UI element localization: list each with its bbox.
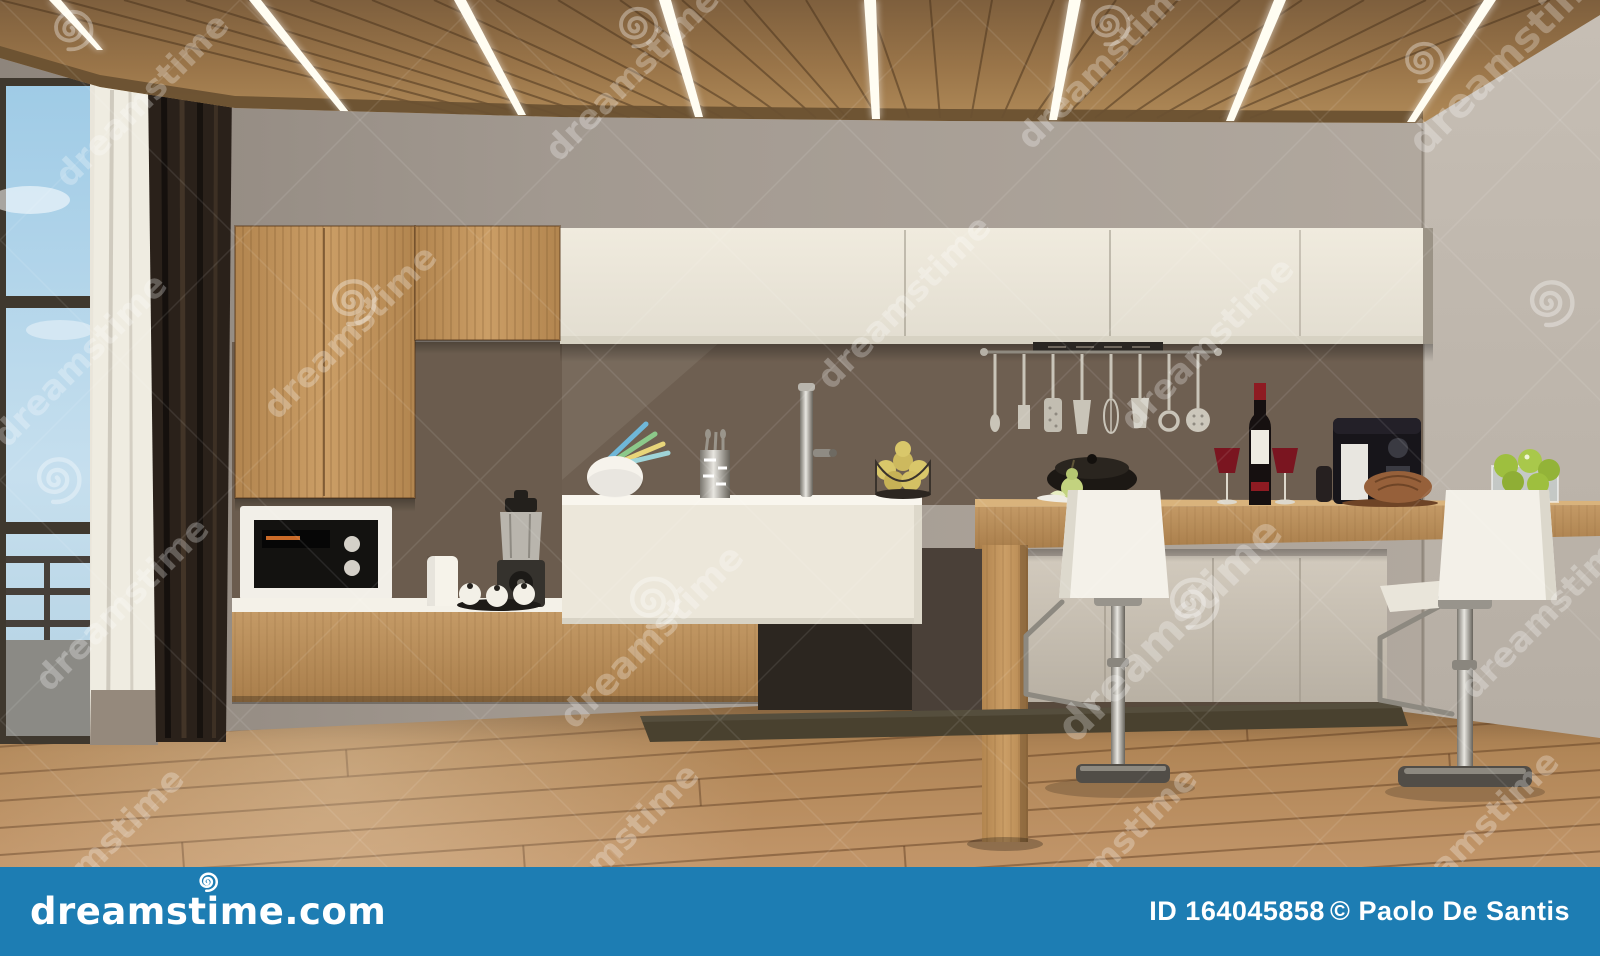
image-credit: ID 164045858 © Paolo De Santis <box>1149 896 1570 927</box>
footer-bar: dreamstime.com ID 164045858 © Paolo De S… <box>0 867 1600 956</box>
image-id: ID 164045858 <box>1149 896 1325 926</box>
kitchen-render: dreamstime dreamstime dreamstime dreamst… <box>0 0 1600 867</box>
dreamstime-logo: dreamstime.com <box>30 893 386 930</box>
author-credit: © Paolo De Santis <box>1330 896 1570 926</box>
dreamstime-logo-text: dreamstime.com <box>30 893 386 930</box>
dreamstime-spiral-icon <box>194 869 220 895</box>
watermark-layer: dreamstime dreamstime dreamstime dreamst… <box>0 0 1600 867</box>
stock-photo-page: dreamstime dreamstime dreamstime dreamst… <box>0 0 1600 956</box>
